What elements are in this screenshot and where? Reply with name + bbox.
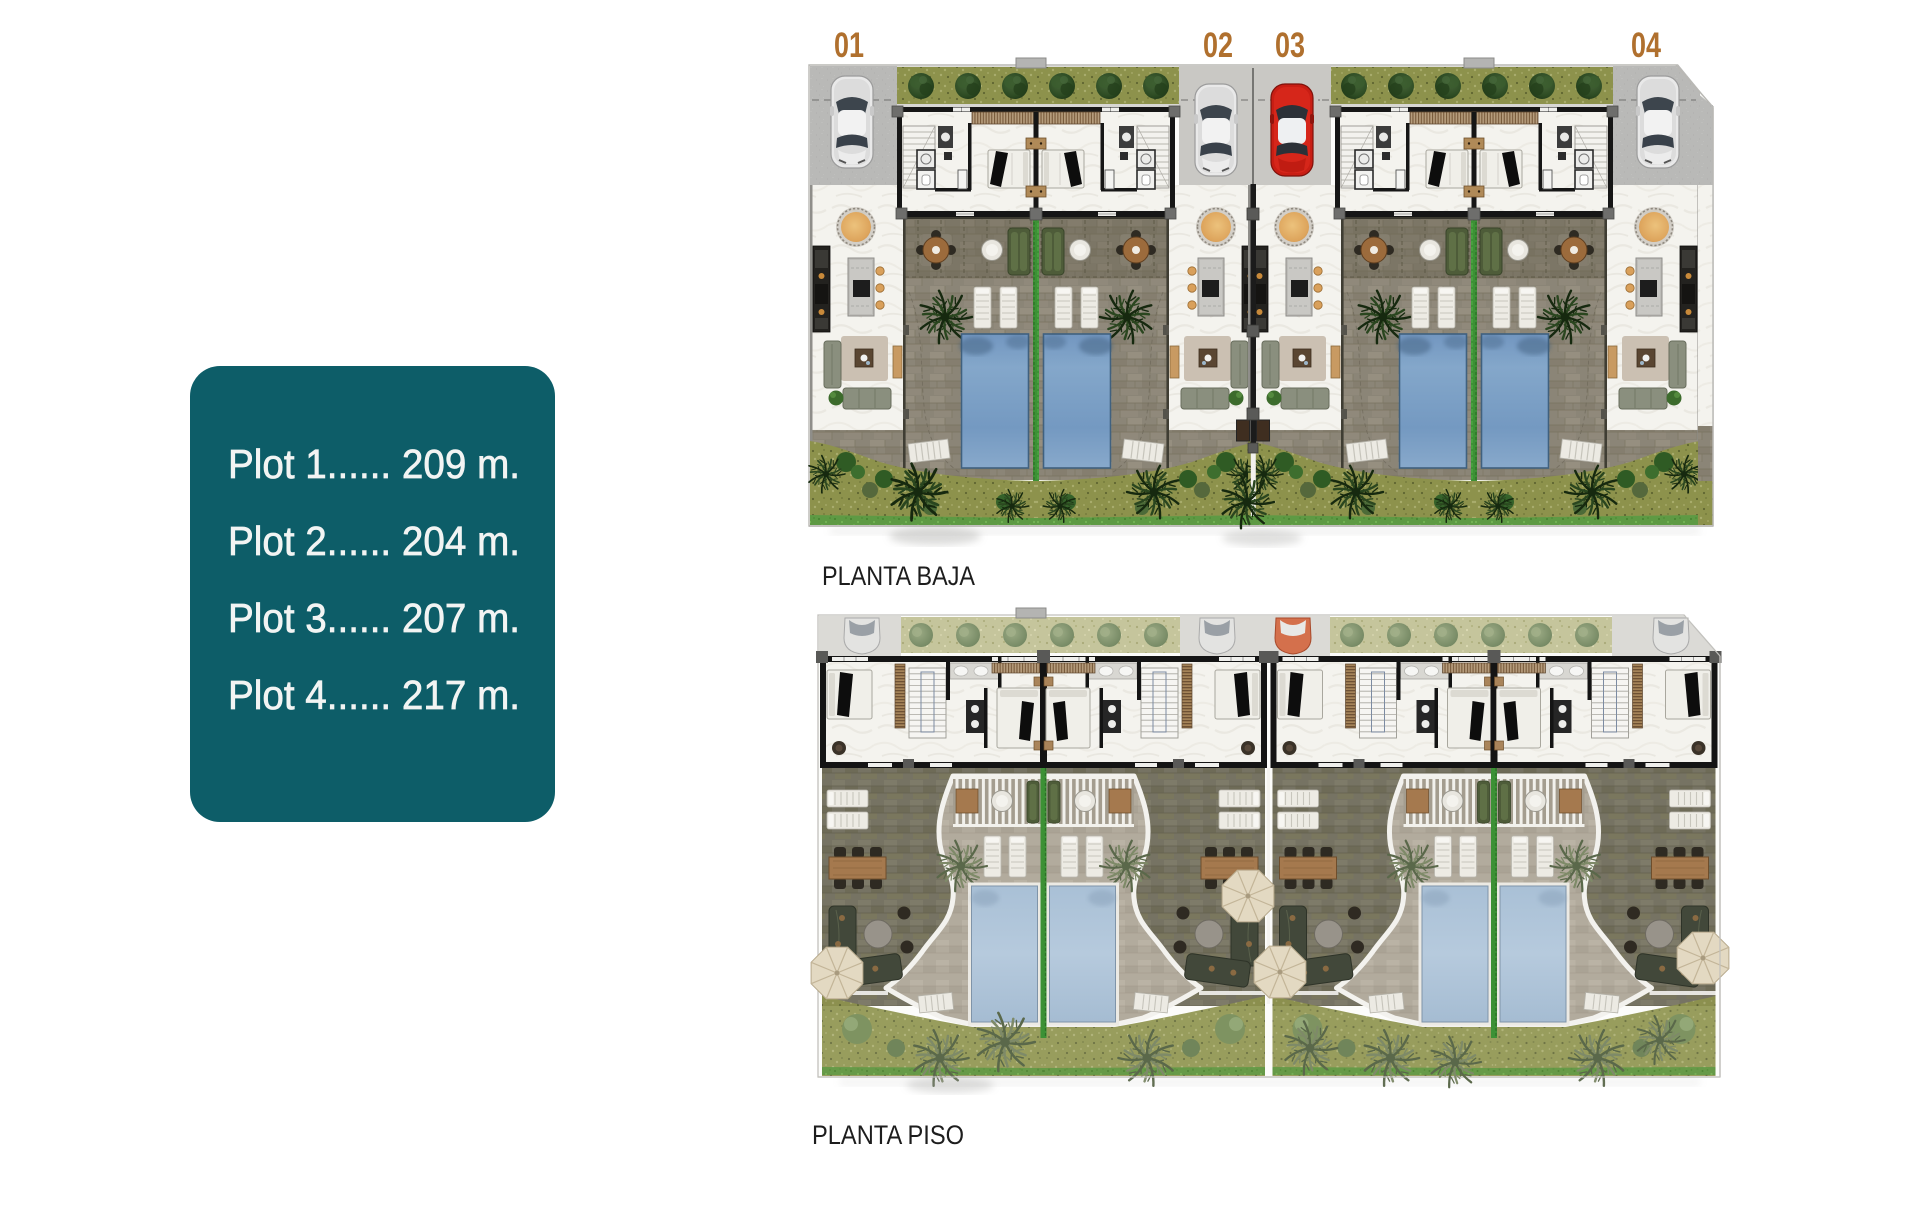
svg-text:03: 03	[1275, 26, 1305, 65]
svg-text:PLANTA PISO: PLANTA PISO	[812, 1120, 964, 1150]
svg-text:Plot 4...... 217 m.: Plot 4...... 217 m.	[228, 672, 520, 718]
svg-text:04: 04	[1631, 26, 1661, 65]
svg-text:02: 02	[1203, 26, 1233, 65]
svg-text:Plot 2...... 204 m.: Plot 2...... 204 m.	[228, 518, 520, 564]
svg-text:Plot 1...... 209 m.: Plot 1...... 209 m.	[228, 441, 520, 487]
svg-text:01: 01	[834, 26, 864, 65]
svg-text:Plot 3...... 207 m.: Plot 3...... 207 m.	[228, 595, 520, 641]
svg-text:PLANTA BAJA: PLANTA BAJA	[822, 561, 975, 591]
